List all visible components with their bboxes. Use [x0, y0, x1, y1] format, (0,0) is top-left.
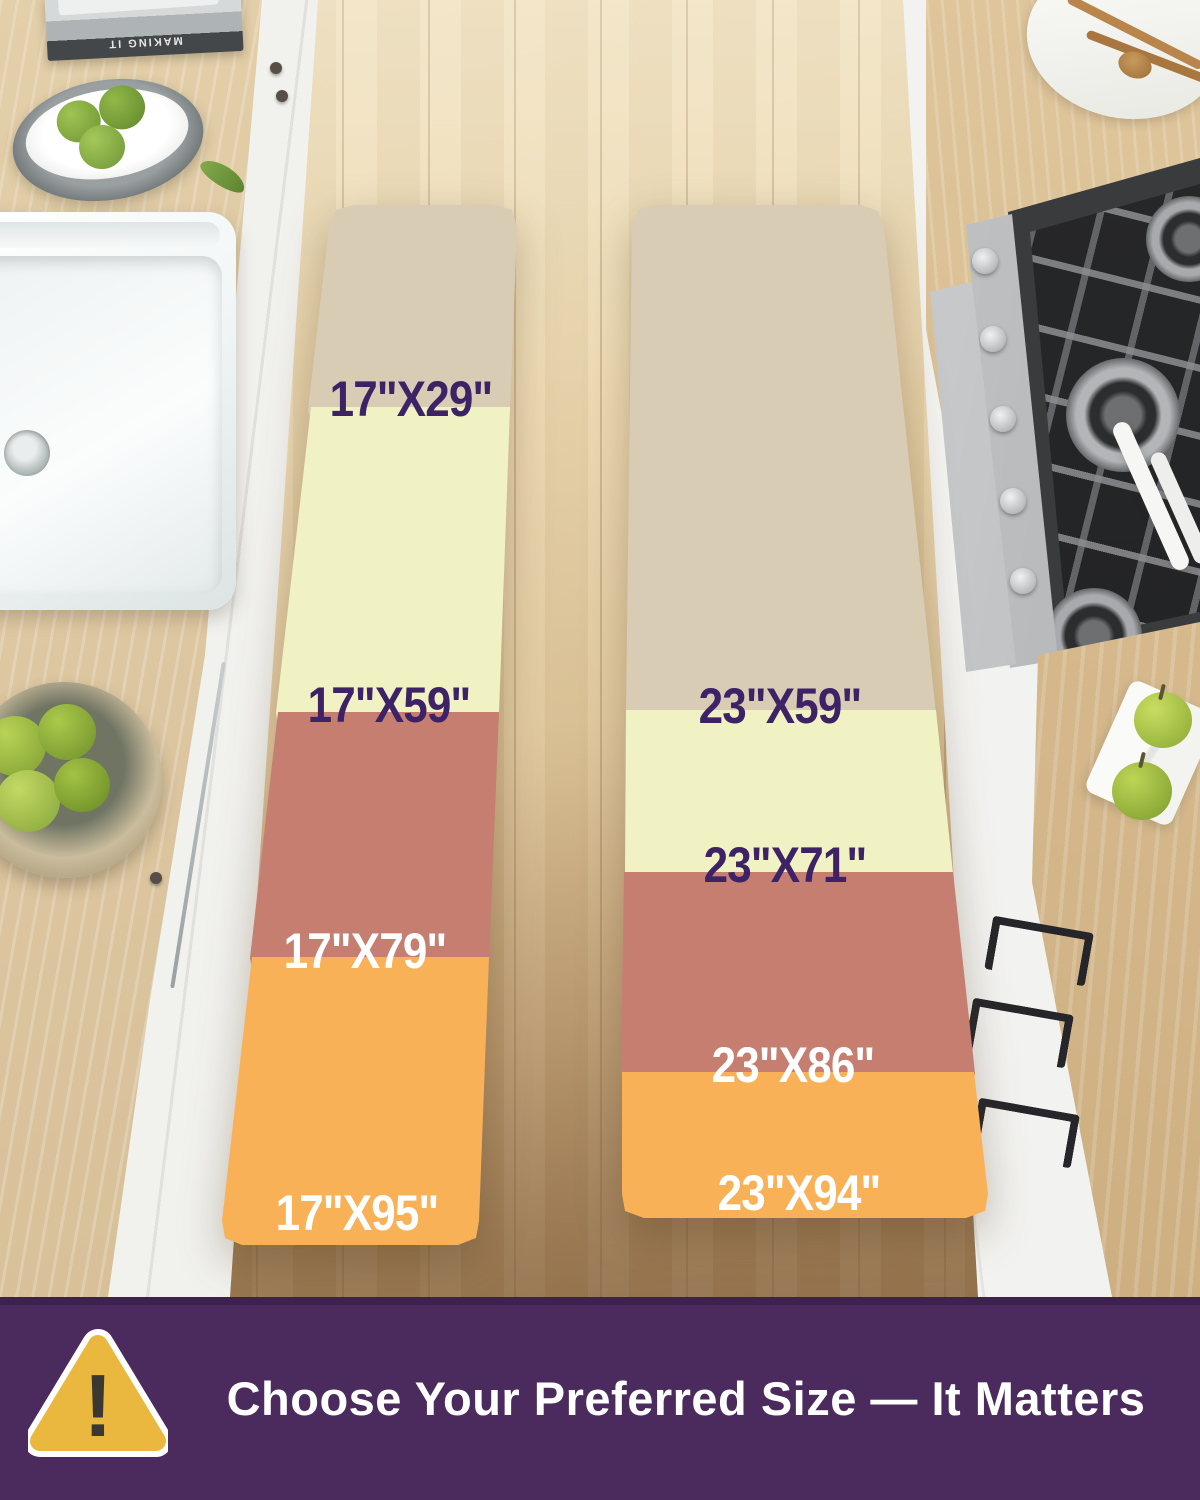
- mat-size-segment: [0, 0, 1200, 1297]
- mat-size-segment: [0, 0, 1200, 1297]
- product-infographic: MAKING IT: [0, 0, 1200, 1500]
- bottom-banner: ! Choose Your Preferred Size — It Matter…: [0, 1297, 1200, 1500]
- mat-size-segment: [0, 0, 1200, 1297]
- size-label: 23"X86": [712, 1036, 875, 1094]
- mat-size-segment: [0, 0, 1200, 1297]
- size-label: 23"X94": [718, 1164, 881, 1222]
- kitchen-photo: MAKING IT: [0, 0, 1200, 1297]
- exclamation-mark: !: [83, 1356, 112, 1455]
- runner-mat-23in: [0, 0, 1200, 1297]
- size-label: 23"X59": [699, 677, 862, 735]
- size-label: 23"X71": [704, 836, 867, 894]
- banner-text: Choose Your Preferred Size — It Matters: [227, 1371, 1146, 1426]
- banner-text-wrap: Choose Your Preferred Size — It Matters: [182, 1297, 1190, 1500]
- warning-triangle-icon: !: [28, 1329, 168, 1461]
